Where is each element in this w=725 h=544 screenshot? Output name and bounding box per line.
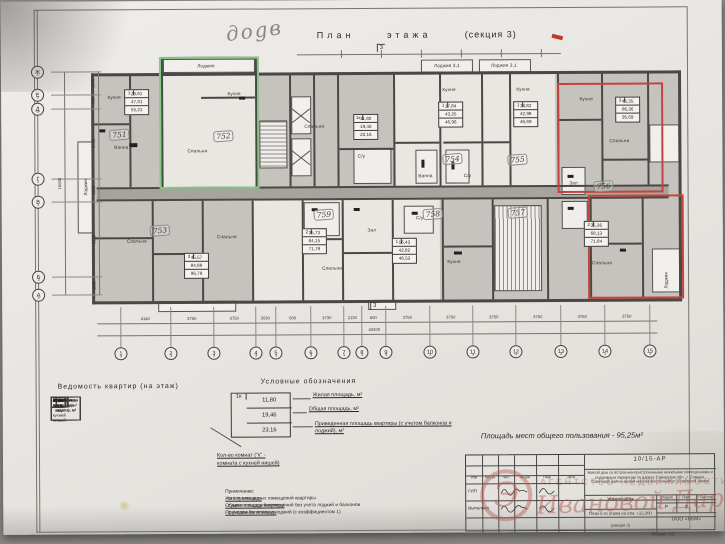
wall xyxy=(339,148,393,150)
wall xyxy=(337,74,340,186)
unit-info-box: 123,6147,3155,21 xyxy=(124,89,149,115)
room-label: Лоджия 3,1 xyxy=(434,63,460,68)
unit-area-value: 42,98 xyxy=(514,110,537,118)
unit-area-value: 11,80 xyxy=(354,115,377,123)
unit-area-value: 45,57 xyxy=(185,254,208,262)
unit-areas: 23,6147,3155,21 xyxy=(125,90,148,114)
axis-extension xyxy=(604,305,605,345)
wall xyxy=(483,141,509,143)
dimension-value: 3750 xyxy=(446,315,455,320)
dimension-line xyxy=(97,332,657,336)
unit-areas: 45,5784,8896,79 xyxy=(185,254,208,278)
legend-sample-reduced: 23,16 xyxy=(247,423,292,438)
dimension-line xyxy=(98,71,100,294)
title-block-line xyxy=(656,502,716,503)
axis-bubble: Ж3 xyxy=(31,66,44,79)
legend-label-total: Общая площадь, м² xyxy=(309,406,359,412)
unit-area-value: 16,82 xyxy=(514,102,537,110)
dimension-total: 16600 xyxy=(57,178,62,190)
axis-extension xyxy=(213,307,214,347)
legend-sample-rows: 11,80 19,46 23,16 xyxy=(247,393,292,436)
wall xyxy=(152,201,155,301)
axis-bubble: 153 xyxy=(643,344,656,357)
axis-extension xyxy=(170,307,171,347)
unit-area-value: 64,15 xyxy=(303,237,326,245)
dimension-value: 1000 xyxy=(92,281,97,290)
room-label: Спальня xyxy=(187,148,207,153)
unit-area-value: 96,79 xyxy=(185,270,208,278)
room-label: Спальня xyxy=(609,138,629,143)
room-label: С/у xyxy=(464,173,472,178)
axis-bubble: 53 xyxy=(269,346,282,359)
dimension-value: 700 xyxy=(91,98,96,105)
title-block-description: Жилой дом со встроенно-пристроенными неж… xyxy=(586,470,714,484)
room-label: Кухня xyxy=(442,87,455,92)
dimension-value: 5750 xyxy=(91,139,96,148)
unit-area-value: 19,46 xyxy=(354,123,377,131)
wall xyxy=(547,199,550,299)
section-mark: 3 xyxy=(377,44,385,52)
axis-bubble: 123 xyxy=(509,345,522,358)
room-label: Лоджия xyxy=(197,63,215,68)
legend-rooms-note-line2: комната с кухней нишей) xyxy=(217,460,280,466)
unit-area-value: 46,96 xyxy=(439,118,462,126)
sheet-value: 8 xyxy=(676,504,696,510)
drawing-sheet: доgв План этажа (секция 3) КухняЛоджияКу… xyxy=(1,0,725,535)
plumbing-fixture xyxy=(99,129,105,132)
unit-area-value: 16,43 xyxy=(393,239,416,247)
unit-area-value: 95,69 xyxy=(616,114,639,122)
unit-area-value: 86,36 xyxy=(616,106,639,114)
room-label: Кухня xyxy=(579,96,592,101)
axis-bubble: 63 xyxy=(304,346,317,359)
axis-bubble: 143 xyxy=(598,345,611,358)
title-block-line xyxy=(466,483,584,485)
unit-info-box: 345,5784,8896,79 xyxy=(184,253,209,279)
handwritten-apartment-number: 756 xyxy=(593,180,614,192)
section-mark: 3 xyxy=(370,302,378,310)
unit-areas: 35,7364,1571,78 xyxy=(303,229,326,253)
unit-area-value: 71,78 xyxy=(303,245,326,253)
wall xyxy=(395,142,439,144)
unit-info-box: 116,8242,9846,69 xyxy=(513,101,538,127)
unit-areas: 16,8242,9846,69 xyxy=(514,102,537,126)
dimension-value: 600 xyxy=(370,315,377,320)
room-label: Спальня xyxy=(304,124,324,129)
axis-bubble: Д3 xyxy=(31,103,44,116)
frame-line xyxy=(461,49,462,57)
frame-line xyxy=(421,50,422,58)
unit-areas: 35,3668,1371,84 xyxy=(585,222,608,246)
notes-lines: Жилая площадь - это сумма жилых помещени… xyxy=(225,494,465,516)
unit-info-box: 235,7364,1571,78 xyxy=(302,228,327,254)
title-block: 10/15-АР Жилой дом со встроенно-пристрое… xyxy=(465,453,715,531)
axis-bubble: 23 xyxy=(164,347,177,360)
title-block-sheet-title: План 5-го этажа на отм. +12,300 xyxy=(586,510,654,515)
axis-extension xyxy=(560,305,561,345)
title-block-line xyxy=(656,512,716,513)
unit-areas: 45,3586,3695,69 xyxy=(616,98,639,122)
dimension-value: 3750 xyxy=(187,316,196,321)
handwritten-apartment-number: 758 xyxy=(422,208,443,220)
axis-bubble: 83 xyxy=(355,346,368,359)
legend-label-living: Жилая площадь, м² xyxy=(313,392,363,398)
axis-bubble: 33 xyxy=(207,347,220,360)
room-label: Лоджия xyxy=(83,179,88,195)
room-label: Спальня xyxy=(217,234,237,239)
axis-bubble: Е3 xyxy=(31,89,44,102)
wall xyxy=(313,74,316,186)
notes-block: Примечание: Жилая площадь - это сумма жи… xyxy=(225,487,465,516)
unit-areas: 11,8019,4623,16 xyxy=(354,115,377,139)
dimension-value: 4140 xyxy=(141,316,150,321)
axis-extension xyxy=(385,306,386,346)
axis-extension xyxy=(255,307,256,347)
stage-value: Р xyxy=(656,504,676,510)
legend-title: Условные обозначения xyxy=(261,378,357,386)
legend-sample-box: 1к 11,80 19,46 23,16 xyxy=(231,392,291,437)
axis-extension xyxy=(310,306,311,346)
legend-sample-total: 19,46 xyxy=(247,408,292,423)
unit-area-value: 42,82 xyxy=(393,247,416,255)
handwritten-apartment-number: 757 xyxy=(507,206,528,218)
handwritten-apartment-number: 752 xyxy=(213,130,234,142)
axis-bubble: 73 xyxy=(337,346,350,359)
axis-extension xyxy=(429,306,430,346)
dimension-value: 3750 xyxy=(403,315,412,320)
axis-extension xyxy=(120,307,121,347)
plumbing-fixture xyxy=(421,160,424,168)
frame-line xyxy=(341,50,342,58)
room-label: Спальня xyxy=(322,266,342,271)
unit-area-value: 17,84 xyxy=(439,102,462,110)
handwritten-apartment-number: 754 xyxy=(442,153,463,165)
plumbing-fixture xyxy=(129,143,137,147)
unit-areas: 16,4342,8246,53 xyxy=(393,239,416,263)
wall xyxy=(289,74,292,186)
dimension-value: 3750 xyxy=(622,314,631,319)
title-block-line xyxy=(498,455,499,532)
wall xyxy=(444,245,492,247)
unit-area-value: 43,25 xyxy=(439,110,462,118)
unit-area-value: 47,31 xyxy=(125,98,148,106)
dimension-value: 3750 xyxy=(230,316,239,321)
dimension-line xyxy=(97,320,657,324)
dimension-value: 2130 xyxy=(348,315,357,320)
room-label: Лоджия xyxy=(664,272,669,288)
legend-room-count: 1к xyxy=(232,394,247,400)
unit-info-box: 235,3668,1371,84 xyxy=(584,221,609,247)
axis-extension xyxy=(361,306,362,346)
bathroom xyxy=(415,150,437,184)
room-label: Спальня xyxy=(592,260,612,265)
role-exec-label: Выполнил xyxy=(468,505,489,510)
dimension-value: 3730 xyxy=(322,315,331,320)
axis-bubble: Г3 xyxy=(32,173,45,186)
axis-bubble: Б3 xyxy=(32,271,45,284)
dimension-value: 3750 xyxy=(489,314,498,319)
title-block-sheet-section: (секция 3) xyxy=(584,522,656,527)
wall xyxy=(344,252,392,254)
title-block-line xyxy=(482,455,483,532)
dimension-value: 600 xyxy=(289,315,296,320)
room-label: Кухня xyxy=(447,259,460,264)
axis-bubble: 133 xyxy=(554,345,567,358)
room-label: Кухня xyxy=(227,91,240,96)
notes-line: Приведенная площадь - с учетом балконов … xyxy=(225,508,465,516)
title-block-line xyxy=(514,455,515,532)
room-label: Кухня xyxy=(516,87,529,92)
format-label: Формат А2 xyxy=(651,531,674,536)
unit-area-value: 23,61 xyxy=(125,90,148,98)
frame-line xyxy=(297,53,561,55)
axis-bubble: В3 xyxy=(32,196,45,209)
unit-area-value: 46,53 xyxy=(393,255,416,263)
room-label: С/у xyxy=(358,153,366,158)
axis-bubble: 13 xyxy=(114,347,127,360)
frame-line xyxy=(687,6,691,529)
leader-line xyxy=(293,412,307,413)
handwritten-apartment-number: 753 xyxy=(149,224,170,236)
dimension-value: 3750 xyxy=(533,314,542,319)
axis-bubble: А3 xyxy=(32,289,45,302)
room-label: Ванна xyxy=(418,173,432,178)
handwritten-apartment-number: 759 xyxy=(313,208,334,220)
title-block-line xyxy=(558,455,559,532)
unit-area-value: 35,36 xyxy=(585,222,608,230)
axis-bubble: 103 xyxy=(423,346,436,359)
staircase xyxy=(259,120,287,168)
axis-extension xyxy=(275,306,276,346)
dimension-value: 1100 xyxy=(91,185,96,194)
room-label: Спальня xyxy=(127,239,147,244)
unit-area-value: 84,88 xyxy=(185,262,208,270)
unit-area-value: 46,69 xyxy=(514,118,537,126)
room-label: Зал xyxy=(367,227,376,232)
unit-area-value: 45,35 xyxy=(616,98,639,106)
elevator-shaft xyxy=(291,138,311,176)
unit-info-box: 117,8443,2546,96 xyxy=(438,101,463,127)
unit-info-box: 1к11,8019,4623,16 xyxy=(353,114,378,140)
frame-line xyxy=(501,49,502,57)
dimension-value: 1070 xyxy=(91,78,96,87)
title-block-line xyxy=(584,455,585,532)
leader-line xyxy=(293,426,313,427)
axis-extension xyxy=(515,305,516,345)
leader-line xyxy=(293,398,311,399)
room-label: Ванна xyxy=(114,145,128,150)
axis-extension xyxy=(649,304,650,344)
wall xyxy=(443,141,481,143)
common-area-text: Площадь мест общего пользования - 95,25м… xyxy=(481,431,643,441)
title-block-code: 10/15-АР xyxy=(584,456,716,463)
unit-info-box: 116,4342,8246,53 xyxy=(392,238,417,264)
legend-label-reduced: Приведенная площадь квартиры (с учетом б… xyxy=(315,420,475,435)
plumbing-fixture xyxy=(354,208,360,211)
handwritten-apartment-number: 751 xyxy=(109,129,130,141)
room-label: Зал xyxy=(569,180,578,185)
dimension-value: 6120 xyxy=(91,234,96,243)
role-gip-label: ГИП xyxy=(468,488,477,493)
unit-area-value: 71,84 xyxy=(585,238,608,246)
axis-extension xyxy=(472,305,473,345)
dimension-line xyxy=(64,72,66,295)
axis-bubble: 93 xyxy=(379,346,392,359)
green-unit-outline xyxy=(159,57,260,190)
frame-line xyxy=(34,6,687,10)
apartment-table-title: Ведомость квартир (на этаж) xyxy=(58,383,179,391)
wall xyxy=(202,201,205,301)
plumbing-fixture xyxy=(454,251,462,254)
room-label: Кухня xyxy=(107,95,120,100)
unit-info-box: 345,3586,3695,69 xyxy=(615,97,640,123)
dimension-value: 3750 xyxy=(578,314,587,319)
unit-area-value: 68,13 xyxy=(585,230,608,238)
unit-area-value: 35,73 xyxy=(303,229,326,237)
title-block-line xyxy=(466,465,584,467)
room-label: Лоджия 3,1 xyxy=(491,63,517,68)
unit-area-value: 55,21 xyxy=(125,106,148,114)
axis-bubble: 43 xyxy=(249,347,262,360)
legend-rooms-note-line1: Кол-во комнат ("к" - xyxy=(217,453,266,459)
unit-areas: 17,8443,2546,96 xyxy=(439,102,462,126)
dimension-total: 43200 xyxy=(368,327,380,332)
axis-bubble: 113 xyxy=(466,345,479,358)
handwritten-apartment-number: 755 xyxy=(507,153,528,165)
axis-extension xyxy=(343,306,344,346)
title-block-line xyxy=(536,455,537,532)
plumbing-fixture xyxy=(568,207,574,210)
legend-sample-living: 11,80 xyxy=(247,393,292,408)
frame-line xyxy=(541,49,542,57)
unit-area-value: 23,16 xyxy=(354,131,377,139)
dimension-value: 3030 xyxy=(261,315,270,320)
